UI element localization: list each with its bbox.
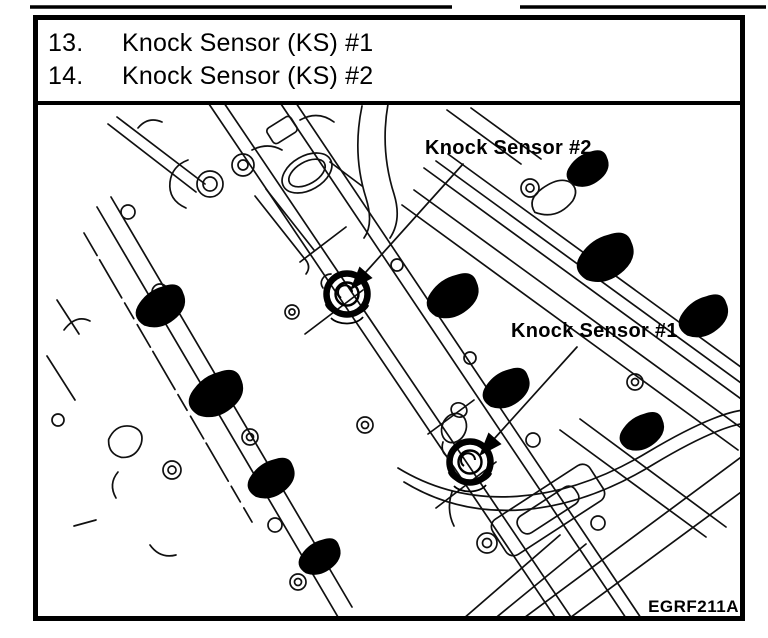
part-number: 14. [48, 60, 122, 93]
parts-list-row: 13. Knock Sensor (KS) #1 [48, 27, 740, 60]
parts-list-header: 13. Knock Sensor (KS) #1 14. Knock Senso… [38, 20, 740, 105]
part-label: Knock Sensor (KS) #2 [122, 60, 373, 93]
part-number: 13. [48, 27, 122, 60]
manual-page: Knock Sensor #2 Knock Sensor #1 EGRF211A… [0, 0, 768, 638]
part-label: Knock Sensor (KS) #1 [122, 27, 373, 60]
parts-list-row: 14. Knock Sensor (KS) #2 [48, 60, 740, 93]
figure-frame [33, 15, 745, 621]
